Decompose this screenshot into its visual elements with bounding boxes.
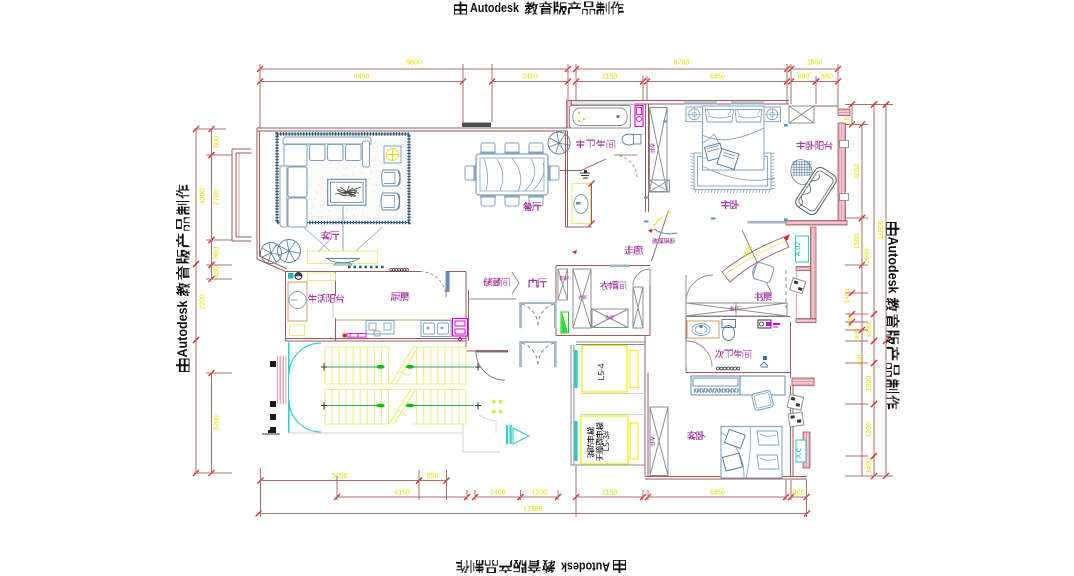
svg-text:3050: 3050	[854, 163, 861, 179]
svg-text:2150: 2150	[602, 74, 618, 81]
svg-text:800: 800	[214, 247, 221, 259]
svg-text:3200: 3200	[214, 415, 221, 431]
svg-text:2450: 2450	[522, 74, 538, 81]
svg-text:485: 485	[793, 490, 805, 497]
svg-text:L5-4: L5-4	[596, 363, 606, 380]
svg-text:4350: 4350	[709, 490, 725, 497]
svg-text:1400: 1400	[866, 458, 873, 474]
svg-text:6700: 6700	[674, 60, 690, 67]
svg-text:850: 850	[427, 473, 439, 480]
svg-text:1500: 1500	[854, 234, 861, 250]
svg-text:400: 400	[857, 354, 864, 365]
svg-text:11800: 11800	[878, 220, 885, 239]
svg-text:880: 880	[798, 74, 810, 81]
svg-text:2150: 2150	[602, 490, 618, 497]
svg-text:1200: 1200	[866, 422, 873, 438]
svg-text:2900: 2900	[864, 248, 871, 263]
svg-text:450: 450	[214, 266, 221, 278]
svg-text:17385: 17385	[523, 506, 543, 513]
svg-text:4300: 4300	[200, 189, 207, 205]
svg-text:Autodesk: Autodesk	[886, 237, 902, 294]
svg-text:1400: 1400	[490, 490, 506, 497]
svg-text:1560: 1560	[807, 60, 823, 67]
svg-text:4350: 4350	[709, 74, 725, 81]
svg-text:A.C: A.C	[796, 447, 803, 458]
svg-text:1500: 1500	[866, 376, 873, 392]
svg-text:1200: 1200	[531, 490, 547, 497]
svg-text:800: 800	[214, 136, 221, 148]
svg-text:Autodesk: Autodesk	[174, 300, 190, 357]
svg-text:L5-3#: L5-3#	[602, 430, 611, 451]
svg-text:A.02: A.02	[795, 242, 802, 257]
svg-text:5050: 5050	[332, 473, 348, 480]
svg-text:4150: 4150	[394, 490, 410, 497]
svg-text:2200: 2200	[200, 294, 207, 310]
svg-text:6450: 6450	[354, 74, 370, 81]
svg-text:9800: 9800	[406, 60, 422, 67]
svg-text:Autodesk: Autodesk	[560, 560, 610, 575]
svg-text:2700: 2700	[214, 190, 221, 206]
svg-text:680: 680	[821, 74, 833, 81]
svg-text:Autodesk: Autodesk	[470, 0, 520, 15]
